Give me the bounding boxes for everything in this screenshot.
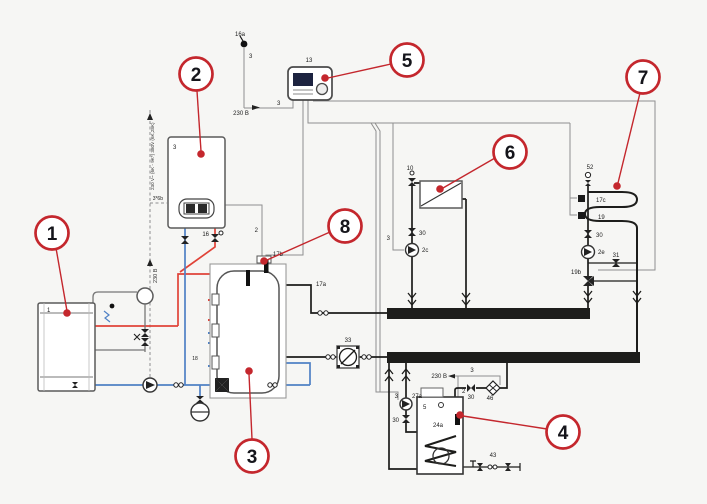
dot-1 [63,309,71,317]
label-33: 33 [345,338,352,344]
callout-4-num: 4 [558,423,569,444]
label-27a: 27a [412,394,423,400]
label-boiler-power: 230 V~ (6K - 9K*) 380V (6K,28K) [150,122,155,190]
label-13: 13 [306,58,313,64]
callout-7-num: 7 [638,68,649,89]
arrow-230v-controller [252,105,260,110]
loop-sensor [110,304,115,309]
loop-pipe-right [93,304,145,352]
leader-5 [328,64,391,78]
blue-tank-return [286,363,310,385]
loop-valve-handle [134,334,140,340]
label-16: 16 [202,232,209,238]
label-2-dhw: 2 [462,389,466,395]
floor-vent-valve [585,180,591,186]
dot-7 [613,182,621,190]
controller [288,67,332,100]
callout-3-num: 3 [247,447,258,468]
label-16a: 16a [235,32,246,38]
check-hx-r1 [362,355,366,359]
floor-valve-30 [584,230,592,238]
floor-heating-circuit [578,172,620,286]
dot-2 [197,150,205,158]
label-18: 18 [192,356,198,362]
radiator-valve-30 [408,228,416,236]
label-24a: 24a [433,423,444,429]
leader-1 [56,248,67,311]
schematic-page: 1 3 230 V~ (6K - 9K*) 380V (6K,28K) 3*6b… [0,0,707,504]
dhw-out-valve-30 [467,384,475,392]
label-17a: 17a [316,282,327,288]
label-230b-ctrl: 230 B [233,111,249,117]
callout-2-num: 2 [191,65,202,86]
boiler-burner-block2 [198,204,207,213]
main-check-3 [268,383,272,387]
check-valve-17a-1 [318,311,322,315]
boiler-burner-block1 [186,204,195,213]
wire-radiator-pump [393,123,404,250]
controller-display [293,73,313,86]
arrow-230v-dhw [448,374,455,379]
wire-2-boiler [225,205,266,256]
main-check-1 [174,383,178,387]
wire-floor-mixvalve [313,101,655,270]
callout-6-num: 6 [505,143,516,164]
callout-8-num: 8 [340,217,351,238]
label-wire2: 2 [255,228,259,234]
callouts: 1 2 3 4 5 6 7 8 [36,44,660,473]
dot-4 [456,411,464,419]
dashed-arrow-up [147,259,153,266]
dhw-collar [421,388,443,397]
manifold-return-bar [387,352,640,363]
label-2e: 2e [598,250,605,256]
check-valve-17a-2 [324,311,328,315]
controller-knob [317,84,328,95]
tank-vessel [217,271,279,393]
label-43: 43 [490,453,497,459]
callout-1-num: 1 [47,224,58,245]
dhw-anode [439,403,444,408]
inlet-check-1 [488,465,492,469]
dot-8 [260,257,268,265]
leader-6 [443,158,495,188]
dhw-valve-30 [402,415,410,423]
hx33-c1 [337,346,340,349]
tank-lance [246,270,250,286]
leader-7 [618,93,640,183]
label-2c: 2c [422,248,428,254]
floor-air-vent-52 [585,172,590,177]
safety-valve-16 [211,234,219,242]
expansion-vessel-small [137,288,153,304]
check-hx-r2 [367,355,371,359]
wire-sensor-17b [266,100,303,260]
wire-230v-controller [244,100,293,108]
inlet-check-2 [493,465,497,469]
dot-5 [321,74,329,82]
label-30-46: 30 [468,395,475,401]
label-230b-dhw: 230 B [431,374,447,380]
loop-valve-2 [141,338,149,346]
dashed-arrow-top [147,113,153,120]
electric-boiler [168,137,225,228]
label-19: 19 [598,215,605,221]
leader-4 [463,416,547,429]
buffer-tank [210,256,286,398]
label-17c: 17c [596,198,606,204]
floor-sensor-17c [578,195,585,202]
tank-port-box1 [212,294,219,305]
radiator-valve-10 [408,178,416,186]
pipe-17a [286,285,387,313]
callout-5-num: 5 [402,51,413,72]
outdoor-sensor-16a [241,41,248,48]
hx33-c3 [337,365,340,368]
dot-6 [436,185,444,193]
label-3-ctrl: 3 [277,101,281,107]
check-hx-l2 [331,355,335,359]
heating-schematic: 1 3 230 V~ (6K - 9K*) 380V (6K,28K) 3*6b… [0,0,707,504]
check-hx-l1 [326,355,330,359]
hx33-c4 [356,365,359,368]
label-52: 52 [587,165,594,171]
label-10: 10 [407,166,414,172]
label-31: 31 [613,253,620,259]
labels: 1 3 230 V~ (6K - 9K*) 380V (6K,28K) 3*6b… [47,32,620,459]
tank-port-box3 [212,356,219,369]
label-3-rad: 3 [387,236,391,242]
main-check-2 [179,383,183,387]
expansion-loop [90,288,153,352]
glycol-zigzag [104,311,110,322]
leader-8 [267,232,330,260]
label-30-floor: 30 [596,233,603,239]
tank-port-box2 [212,324,219,337]
main-check-4 [273,383,277,387]
floor-coil [585,192,637,352]
hx33-c2 [356,346,359,349]
label-30-27a: 30 [392,418,399,424]
boiler-blue-valve [181,236,189,244]
radiator-circuit [406,171,463,257]
expansion-valve [196,396,204,403]
label-power-left: 230 B [153,268,159,283]
manifold-supply-bar [387,308,590,319]
label-3-16a: 3 [249,54,253,60]
radiator-return-pipe [462,199,466,308]
label-46: 46 [487,396,494,402]
label-19b: 19b [571,270,582,276]
loop-pipe-top [93,292,137,350]
safety-valve-head [219,231,223,235]
dot-3 [245,367,253,375]
loop-valve-1 [141,329,149,337]
floor-sensor-19 [578,212,585,219]
label-boiler-fuse: 3*6b [153,196,164,202]
label-3-dhw: 3 [470,368,474,374]
label-30-rad: 30 [419,231,426,237]
heat-exchanger-33 [337,346,359,368]
